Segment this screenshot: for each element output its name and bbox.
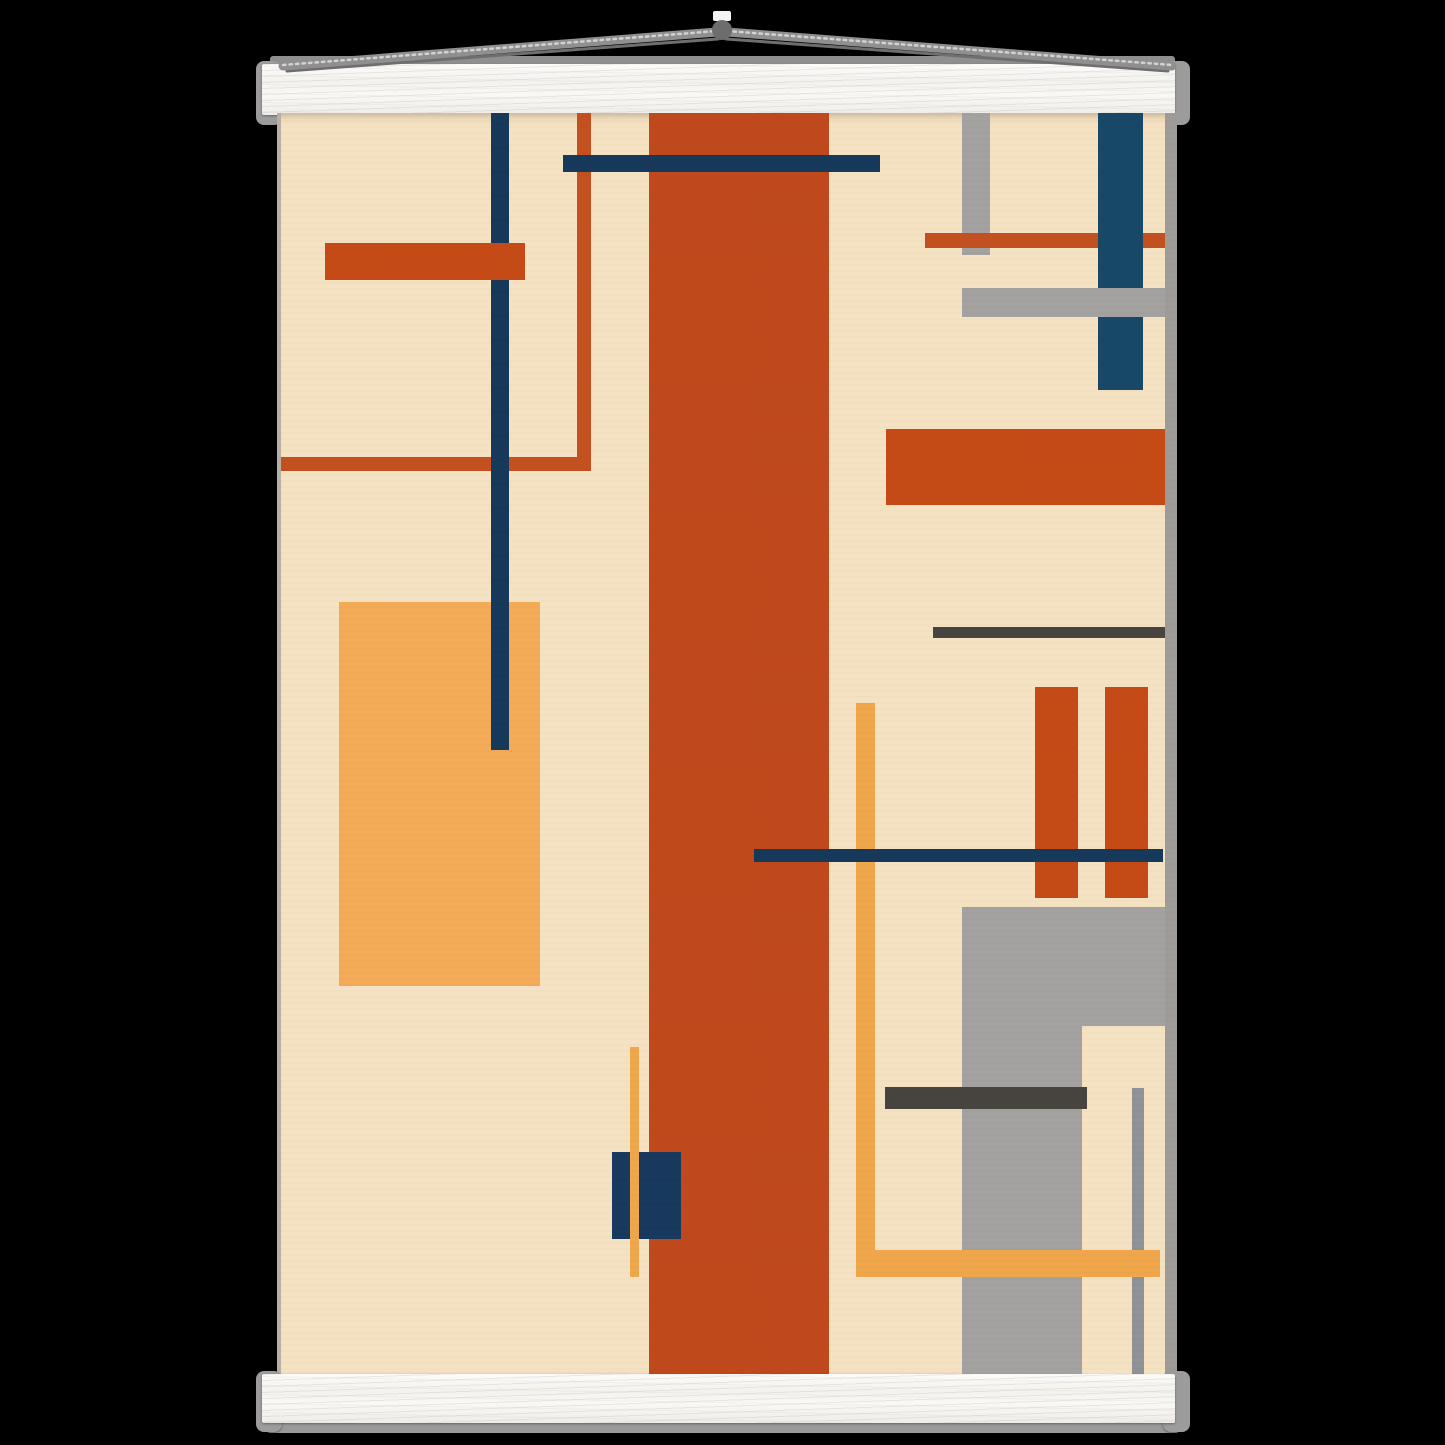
charcoal-line-right <box>933 627 1165 638</box>
gray-horizontal-bar-topright <box>962 288 1177 317</box>
charcoal-bar-bottomright <box>885 1087 1087 1109</box>
cord-top-tab <box>713 11 731 21</box>
amber-l-vertical-right <box>856 703 875 1277</box>
amber-thin-line-center <box>630 1047 639 1277</box>
amber-l-horizontal-right <box>856 1250 1160 1277</box>
navy-horizontal-top <box>563 155 880 172</box>
cream-notch-bottomright <box>1082 1026 1165 1376</box>
orange-vbar-right-2 <box>1105 687 1148 898</box>
navy-thin-vertical-left <box>491 113 509 750</box>
bottom-hanger-bar <box>262 1374 1175 1423</box>
hanging-cord <box>0 0 1445 140</box>
thin-gray-line-bottomright <box>1132 1088 1144 1376</box>
amber-rect-left <box>339 602 540 986</box>
product-mockup-stage <box>0 0 1445 1445</box>
gray-right-edge-strip <box>1165 113 1177 1376</box>
orange-bar-topleft <box>325 243 525 280</box>
poster-paper <box>277 113 1177 1376</box>
orange-bar-right <box>886 429 1165 505</box>
navy-wide-bar-topright <box>1098 113 1143 390</box>
thin-orange-l-horizontal <box>277 457 591 471</box>
orange-vbar-right-1 <box>1035 687 1078 898</box>
navy-rect-bottom-center <box>612 1152 681 1239</box>
left-edge-shadow <box>277 113 281 1376</box>
navy-horizontal-middle <box>754 849 1163 862</box>
cord-ring <box>712 20 732 40</box>
